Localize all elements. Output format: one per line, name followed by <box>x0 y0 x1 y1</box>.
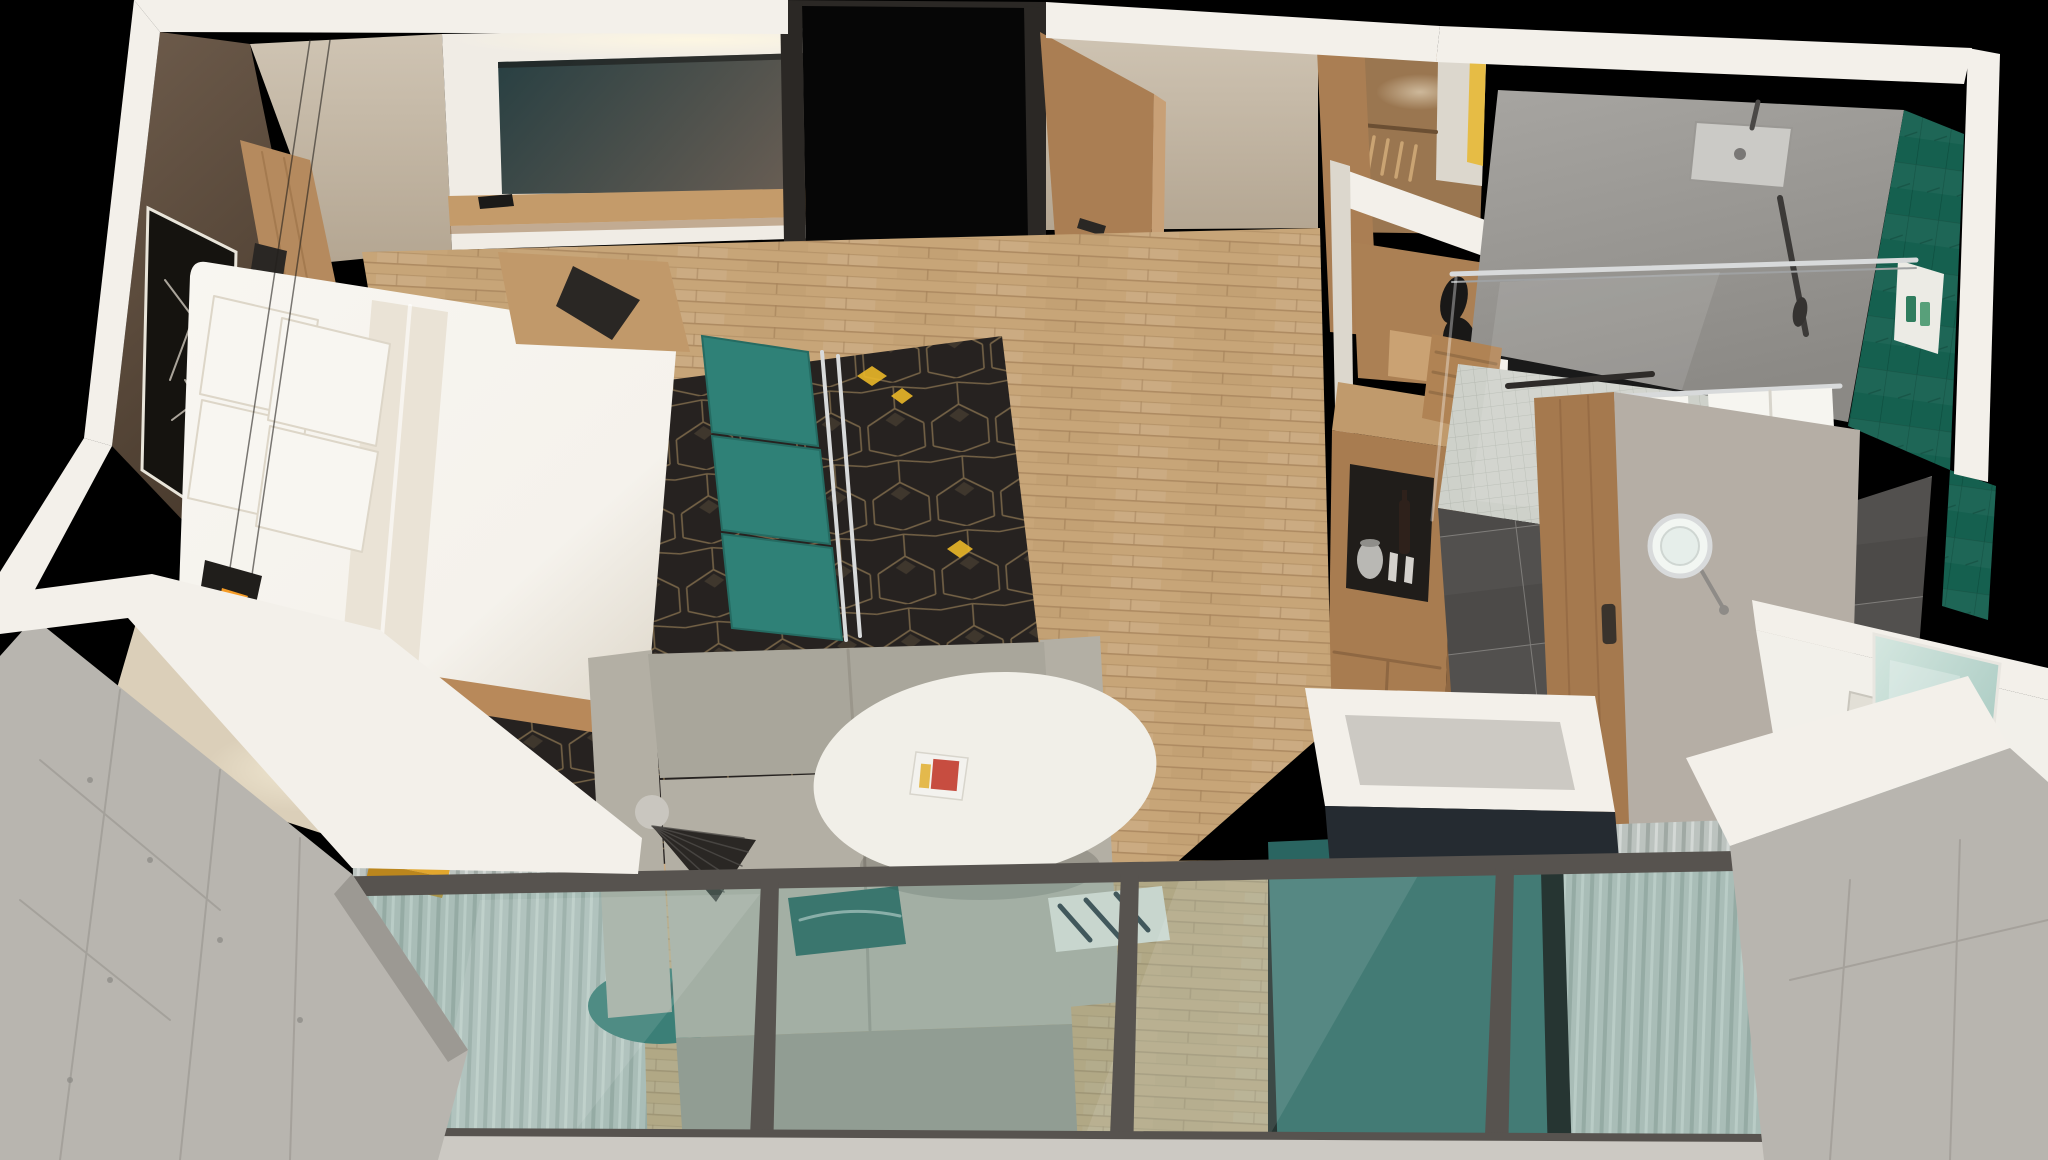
navy-half-wall <box>1305 688 1620 870</box>
minibar-niche <box>1346 464 1434 602</box>
door-opening <box>802 6 1030 242</box>
shower-niche <box>1894 260 1944 354</box>
barn-door-handle <box>1601 604 1616 644</box>
half-wall-cap-concrete <box>1345 715 1575 790</box>
render-canvas <box>0 0 2048 1160</box>
magazine <box>910 752 968 800</box>
nightstand-upper <box>498 252 690 352</box>
hotel-room-cutaway-render <box>0 0 2048 1160</box>
shower-head-center <box>1734 148 1746 160</box>
cut-band-top-left <box>134 0 788 34</box>
lamp-cap <box>635 795 669 829</box>
green-tile-sliver <box>1942 470 1996 620</box>
closet-yellow-accent <box>1467 56 1486 166</box>
door-jamb-left <box>780 0 806 246</box>
